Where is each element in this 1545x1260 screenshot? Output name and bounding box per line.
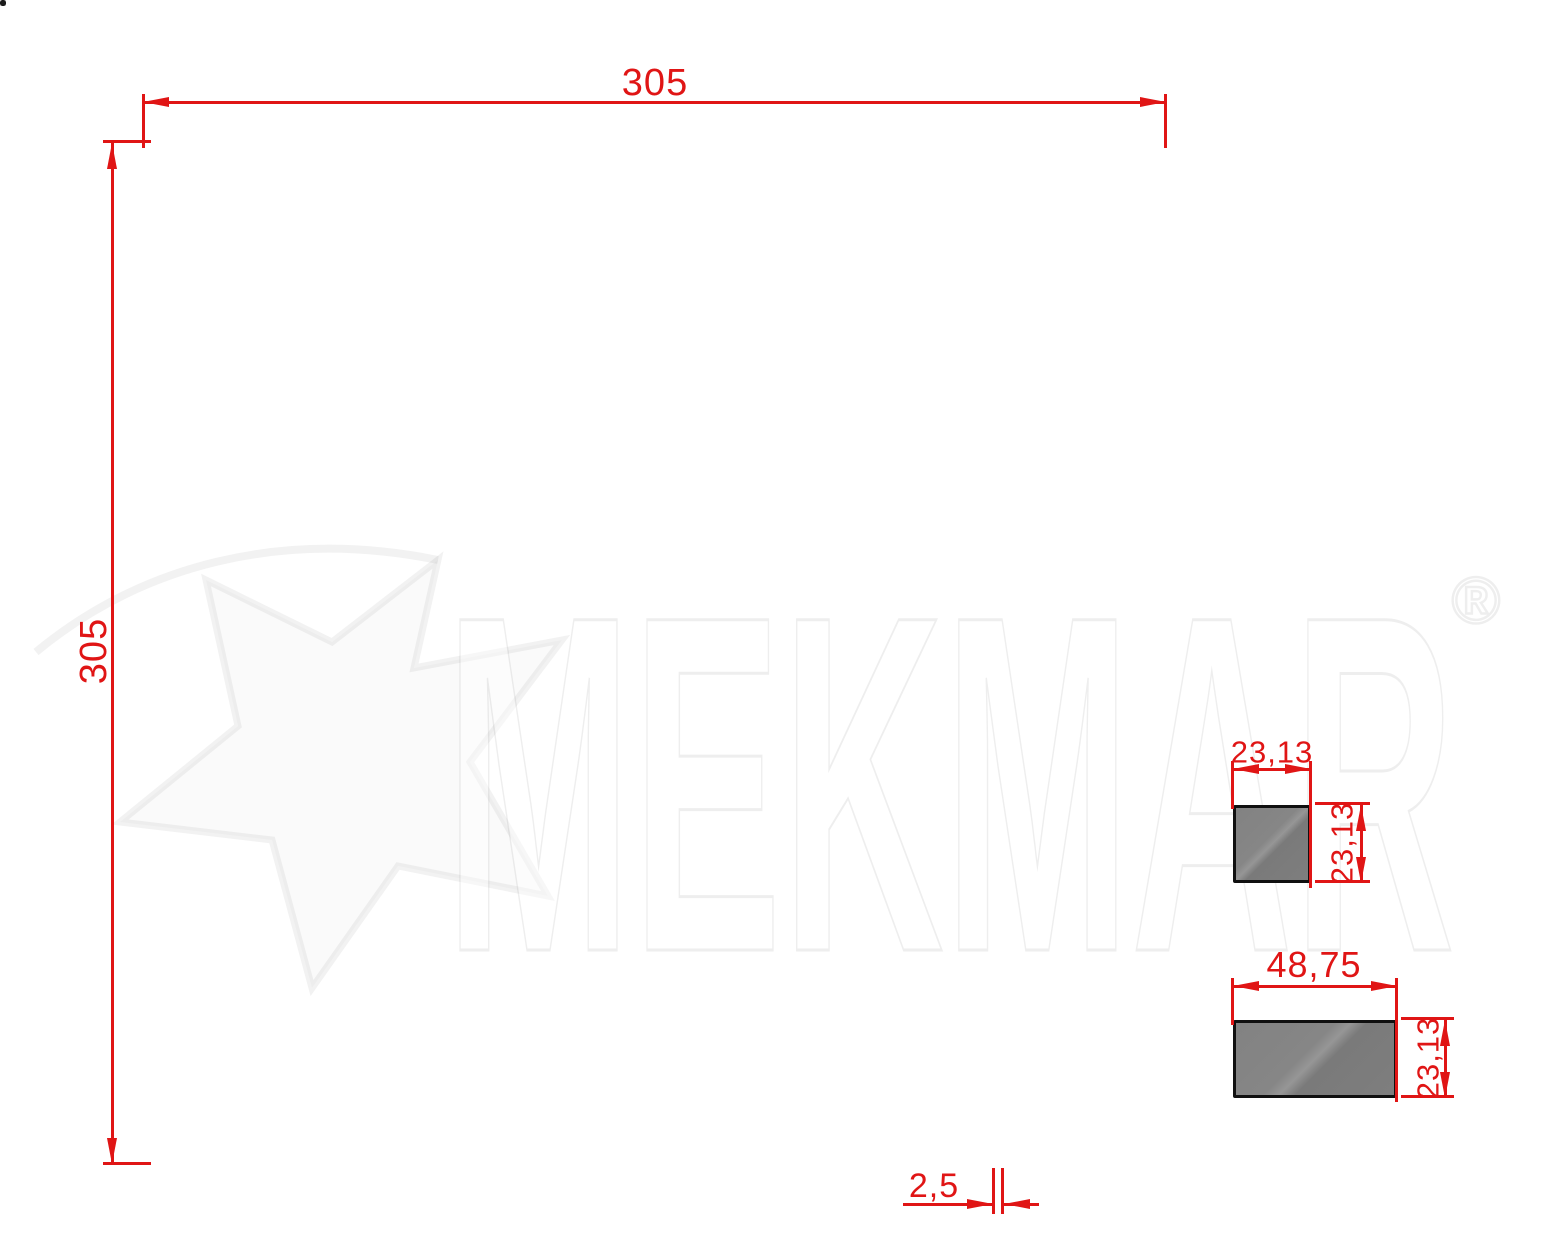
arrowhead-right (967, 1199, 993, 1209)
dim-label-top-width: 305 (622, 64, 688, 102)
dimension-layer: 305 305 2,5 23,13 23,13 (0, 0, 1545, 1260)
arrowhead-right (1140, 97, 1166, 107)
dim-label-tile-gap: 2,5 (909, 1169, 959, 1203)
dim-label-square-width: 23,13 (1231, 737, 1314, 768)
dim-label-rect-width: 48,75 (1266, 947, 1361, 983)
arrowhead-down (107, 1138, 117, 1164)
dim-label-square-height: 23,13 (1327, 802, 1358, 885)
detail-rect-tile (1233, 1020, 1397, 1098)
dim-label-rect-height: 23,13 (1413, 1017, 1444, 1100)
extension-line (1309, 761, 1312, 888)
arrowhead-up (107, 143, 117, 169)
technical-drawing-canvas: MEKMAR ® 305 305 2,5 23,13 (0, 0, 1545, 1260)
arrowhead-left (1233, 981, 1259, 991)
arrowhead-left (143, 97, 169, 107)
arrowhead-right (1371, 981, 1397, 991)
dim-label-left-height: 305 (75, 618, 113, 684)
arrowhead-left (1004, 1199, 1030, 1209)
detail-square-tile (1233, 805, 1311, 883)
extension-line (1395, 978, 1398, 1102)
